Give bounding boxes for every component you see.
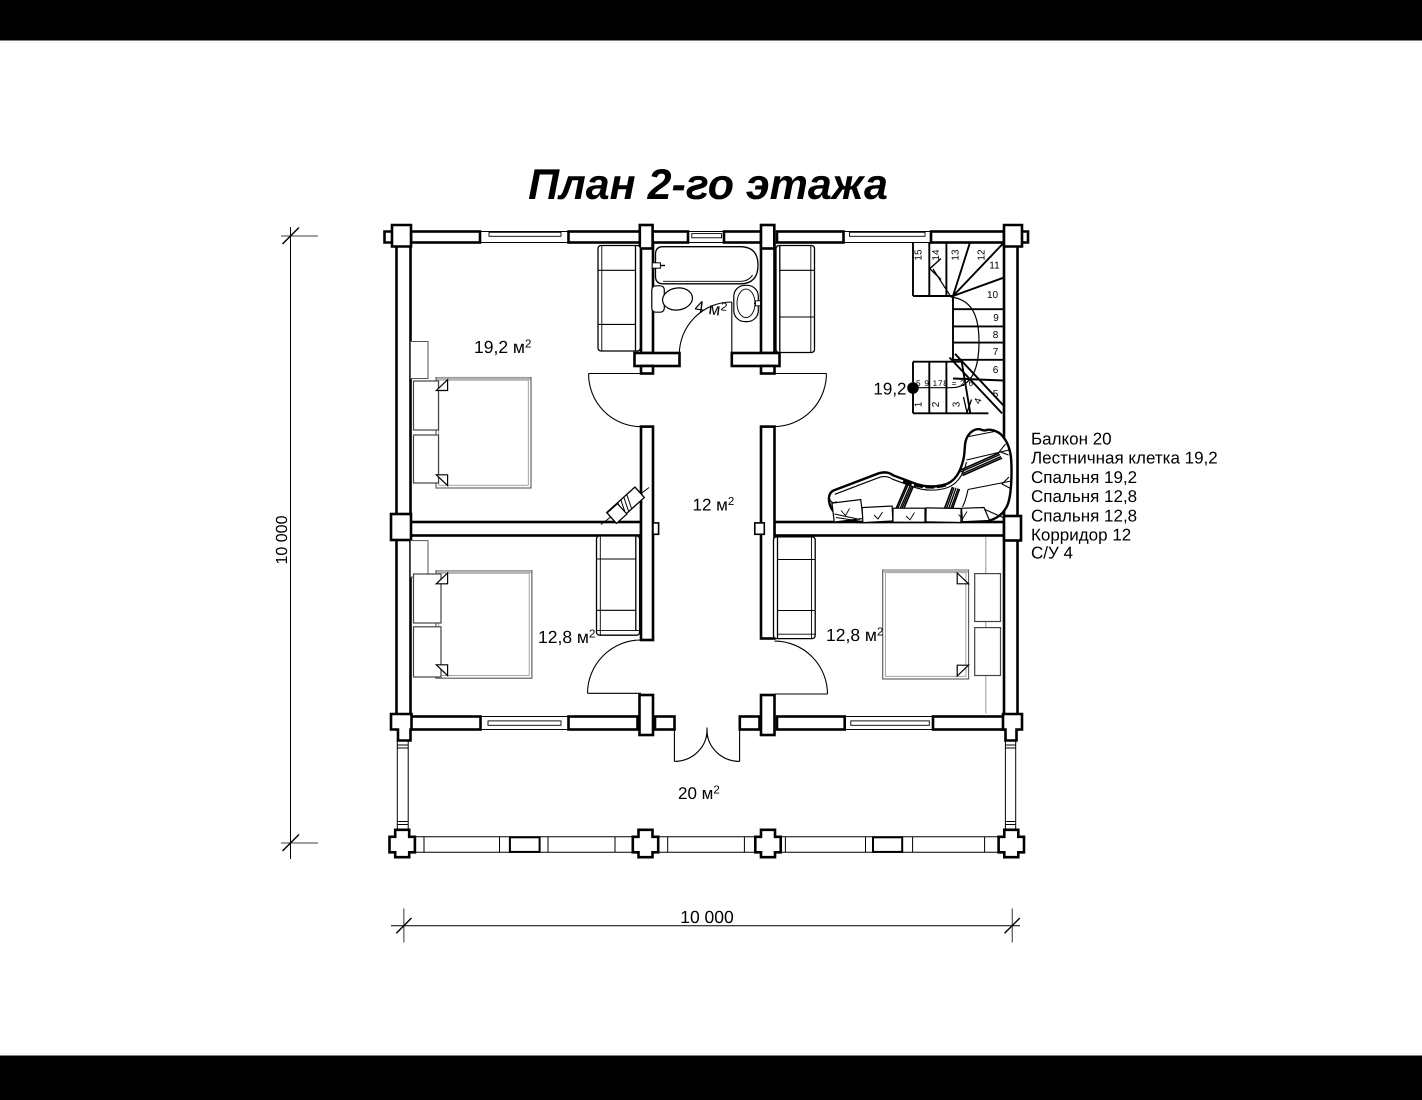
- svg-text:15: 15: [914, 249, 925, 261]
- svg-text:19,2: 19,2: [873, 379, 906, 398]
- svg-text:7: 7: [993, 347, 999, 358]
- svg-text:5 9 178 = 2 6: 5 9 178 = 2 6: [916, 379, 973, 388]
- svg-text:8: 8: [993, 330, 999, 341]
- svg-text:План 2-го этажа: План 2-го этажа: [528, 161, 888, 209]
- svg-text:Балкон 20: Балкон 20: [1031, 430, 1112, 449]
- svg-text:Спальня 12,8: Спальня 12,8: [1031, 506, 1137, 525]
- svg-text:13: 13: [951, 249, 962, 261]
- svg-text:9: 9: [993, 313, 999, 324]
- svg-text:Спальня 19,2: Спальня 19,2: [1031, 468, 1137, 487]
- svg-text:Корридор 12: Корридор 12: [1031, 526, 1131, 545]
- svg-text:С/У 4: С/У 4: [1031, 544, 1073, 563]
- svg-text:1: 1: [914, 401, 925, 407]
- svg-text:2: 2: [931, 401, 942, 407]
- svg-text:Лестничная клетка 19,2: Лестничная клетка 19,2: [1031, 449, 1218, 468]
- svg-text:3: 3: [952, 401, 963, 407]
- svg-text:10 000: 10 000: [274, 515, 291, 564]
- svg-text:6: 6: [993, 365, 999, 376]
- svg-text:12: 12: [977, 249, 988, 261]
- svg-text:10 000: 10 000: [680, 907, 734, 927]
- svg-text:Спальня 12,8: Спальня 12,8: [1031, 487, 1137, 506]
- svg-text:19,2 м2: 19,2 м2: [474, 337, 531, 357]
- svg-text:11: 11: [989, 261, 1000, 272]
- svg-text:10: 10: [987, 290, 999, 301]
- svg-text:5: 5: [993, 389, 999, 400]
- svg-text:12,8 м2: 12,8 м2: [826, 625, 883, 645]
- svg-text:12,8 м2: 12,8 м2: [538, 627, 595, 647]
- svg-text:14: 14: [931, 249, 942, 261]
